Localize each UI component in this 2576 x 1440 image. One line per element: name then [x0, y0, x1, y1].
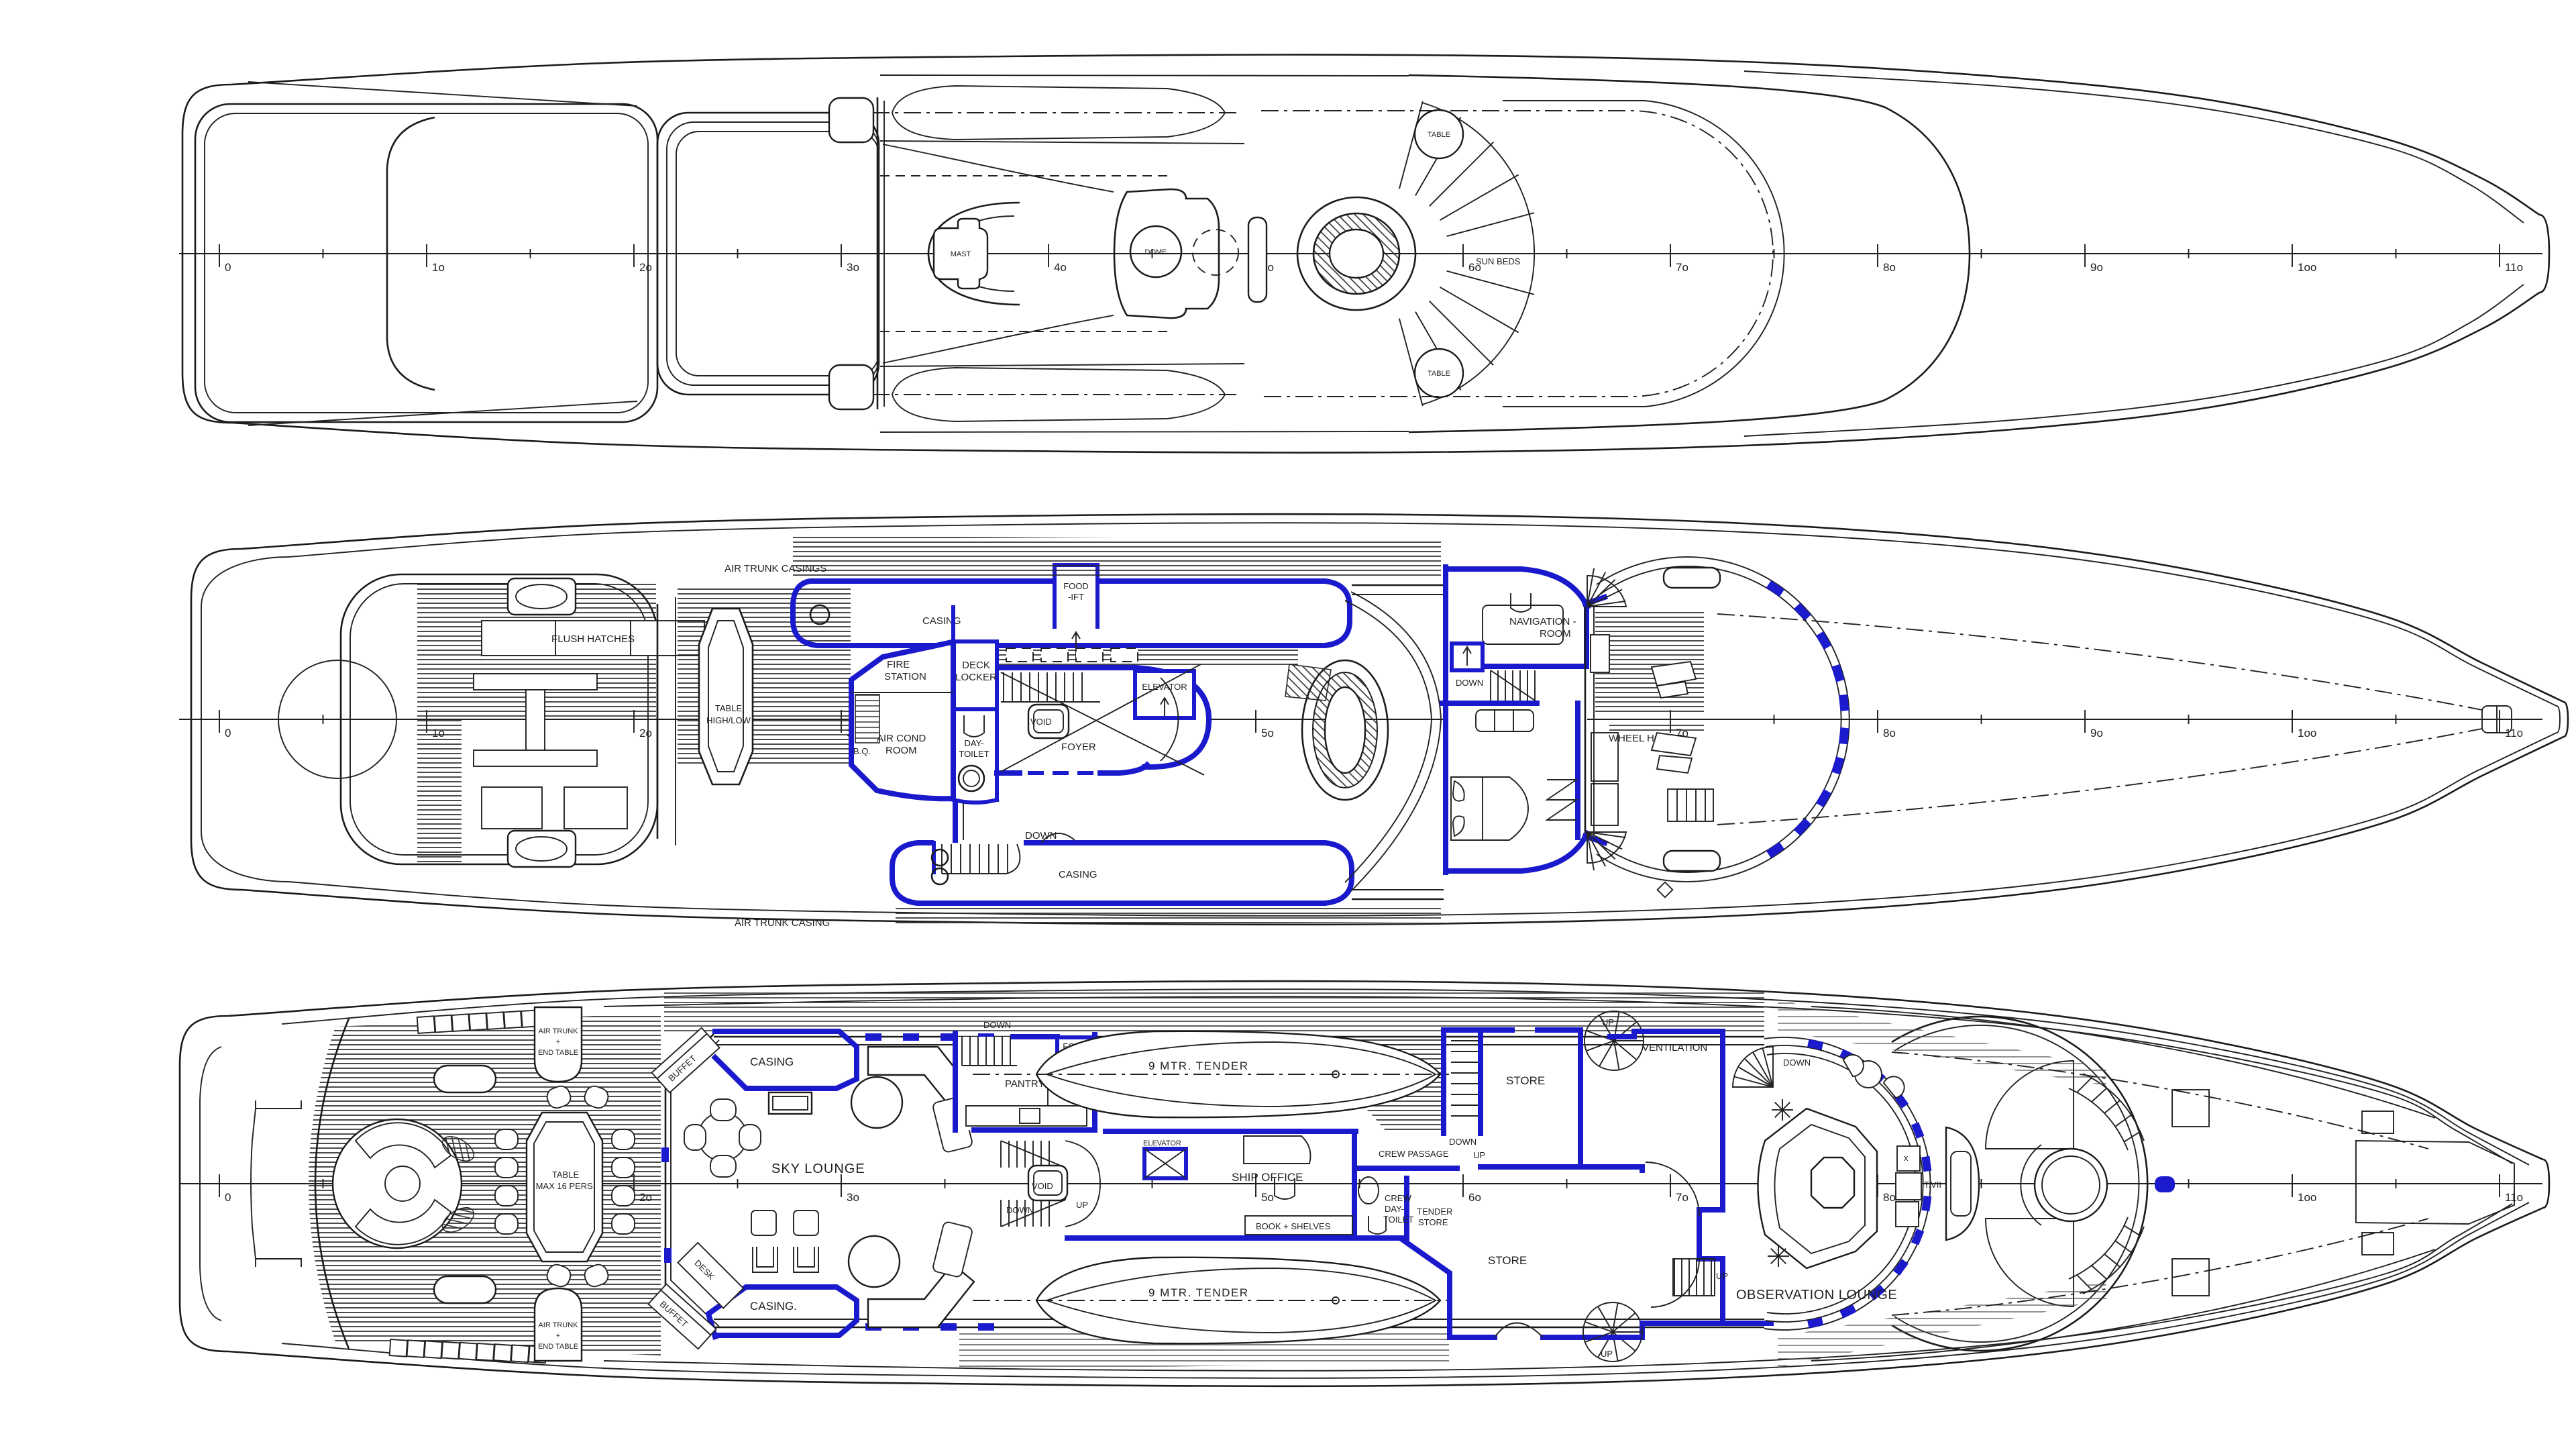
svg-text:1oo: 1oo [2298, 1191, 2316, 1204]
svg-text:FOYER: FOYER [1061, 741, 1096, 753]
svg-text:SUN BEDS: SUN BEDS [1476, 256, 1521, 266]
svg-text:9o: 9o [2090, 261, 2103, 274]
svg-text:CREW: CREW [1385, 1193, 1411, 1203]
svg-text:+: + [556, 1332, 560, 1340]
svg-text:TENDER: TENDER [1417, 1206, 1452, 1217]
svg-text:TOILET: TOILET [959, 749, 989, 759]
svg-text:STATION: STATION [884, 671, 926, 682]
svg-text:OBSERVATION LOUNGE: OBSERVATION LOUNGE [1736, 1288, 1897, 1302]
svg-text:AIR TRUNK CASING: AIR TRUNK CASING [735, 917, 830, 929]
svg-text:DECK: DECK [962, 660, 990, 671]
svg-text:0: 0 [225, 1191, 231, 1204]
svg-text:VOID: VOID [1032, 1181, 1053, 1191]
svg-text:2o: 2o [639, 727, 652, 739]
svg-text:DOME: DOME [1145, 248, 1167, 256]
svg-text:MAST: MAST [951, 250, 971, 258]
svg-text:7o: 7o [1676, 261, 1688, 274]
svg-text:2o: 2o [639, 261, 652, 274]
svg-text:6o: 6o [1468, 1191, 1481, 1204]
svg-text:5o: 5o [1261, 1191, 1274, 1204]
svg-text:7o: 7o [1676, 1191, 1688, 1204]
svg-text:STORE: STORE [1488, 1254, 1527, 1267]
svg-text:DAY-: DAY- [1385, 1204, 1404, 1214]
svg-text:FLUSH HATCHES: FLUSH HATCHES [551, 633, 635, 645]
svg-text:ELEVATOR: ELEVATOR [1143, 1139, 1181, 1147]
svg-text:DOWN: DOWN [1449, 1137, 1477, 1147]
svg-text:UP: UP [1601, 1349, 1613, 1359]
svg-text:TABLE: TABLE [1428, 370, 1450, 378]
svg-text:BOOK + SHELVES: BOOK + SHELVES [1256, 1221, 1331, 1231]
svg-text:TABLE: TABLE [552, 1170, 580, 1180]
svg-text:STORE: STORE [1506, 1074, 1545, 1087]
svg-text:DAY-: DAY- [965, 738, 984, 748]
svg-text:DOWN: DOWN [1783, 1058, 1811, 1068]
svg-text:CASING: CASING [1059, 869, 1097, 880]
svg-text:5o: 5o [1261, 727, 1274, 739]
svg-text:TABLE: TABLE [1428, 131, 1450, 139]
svg-text:AIR TRUNK: AIR TRUNK [538, 1027, 578, 1035]
svg-text:8o: 8o [1883, 261, 1896, 274]
svg-text:T.VII: T.VII [1924, 1180, 1941, 1190]
svg-text:x: x [1904, 1153, 1909, 1163]
svg-text:VOID: VOID [1030, 717, 1052, 727]
svg-text:DOWN: DOWN [1006, 1205, 1034, 1215]
svg-text:CREW PASSAGE: CREW PASSAGE [1379, 1149, 1449, 1159]
svg-text:1o: 1o [432, 261, 445, 274]
svg-text:UP: UP [1076, 1200, 1088, 1210]
svg-text:AIR TRUNK: AIR TRUNK [538, 1321, 578, 1329]
svg-text:SKY LOUNGE: SKY LOUNGE [771, 1162, 865, 1176]
svg-text:STORE: STORE [1418, 1217, 1448, 1227]
svg-text:UP: UP [1473, 1150, 1485, 1160]
svg-text:CASING.: CASING. [750, 1300, 797, 1313]
svg-text:TABLE: TABLE [715, 703, 743, 713]
svg-text:11o: 11o [2505, 261, 2523, 274]
svg-text:DOWN: DOWN [1025, 830, 1057, 841]
svg-text:CASING: CASING [750, 1056, 794, 1068]
svg-text:SHIP OFFICE: SHIP OFFICE [1232, 1171, 1303, 1184]
svg-text:1oo: 1oo [2298, 727, 2316, 739]
svg-text:8o: 8o [1883, 1191, 1896, 1204]
svg-text:8o: 8o [1883, 727, 1896, 739]
svg-text:B.Q.: B.Q. [853, 746, 871, 756]
svg-text:+: + [556, 1038, 560, 1046]
svg-text:NAVIGATION -: NAVIGATION - [1509, 616, 1576, 627]
svg-text:9 MTR. TENDER: 9 MTR. TENDER [1148, 1286, 1249, 1299]
svg-text:FOOD: FOOD [1063, 581, 1089, 591]
svg-text:3o: 3o [847, 1191, 859, 1204]
svg-text:-IFT: -IFT [1068, 592, 1084, 602]
svg-text:ROOM: ROOM [1540, 628, 1571, 639]
svg-text:0: 0 [225, 261, 231, 274]
svg-text:VENTILATION: VENTILATION [1642, 1042, 1707, 1053]
svg-text:AIR COND: AIR COND [877, 733, 926, 744]
svg-text:UP: UP [1602, 1017, 1614, 1027]
svg-text:MAX 16 PERS.: MAX 16 PERS. [536, 1181, 596, 1191]
svg-text:PANTRY: PANTRY [1005, 1078, 1044, 1090]
svg-text:9 MTR. TENDER: 9 MTR. TENDER [1148, 1060, 1249, 1072]
svg-text:3o: 3o [847, 261, 859, 274]
svg-text:DOWN: DOWN [1456, 678, 1483, 688]
svg-text:4o: 4o [1054, 261, 1067, 274]
svg-text:END TABLE: END TABLE [538, 1049, 578, 1057]
svg-text:TOILET: TOILET [1383, 1215, 1413, 1225]
svg-text:DOWN: DOWN [983, 1020, 1011, 1030]
svg-text:UP: UP [1716, 1271, 1728, 1281]
svg-text:9o: 9o [2090, 727, 2103, 739]
svg-text:1oo: 1oo [2298, 261, 2316, 274]
svg-text:ROOM: ROOM [885, 745, 917, 756]
svg-text:LOCKER: LOCKER [955, 672, 997, 683]
svg-text:0: 0 [225, 727, 231, 739]
svg-text:HIGH/LOW: HIGH/LOW [706, 715, 751, 725]
svg-text:END TABLE: END TABLE [538, 1343, 578, 1351]
svg-text:FIRE: FIRE [887, 659, 910, 670]
